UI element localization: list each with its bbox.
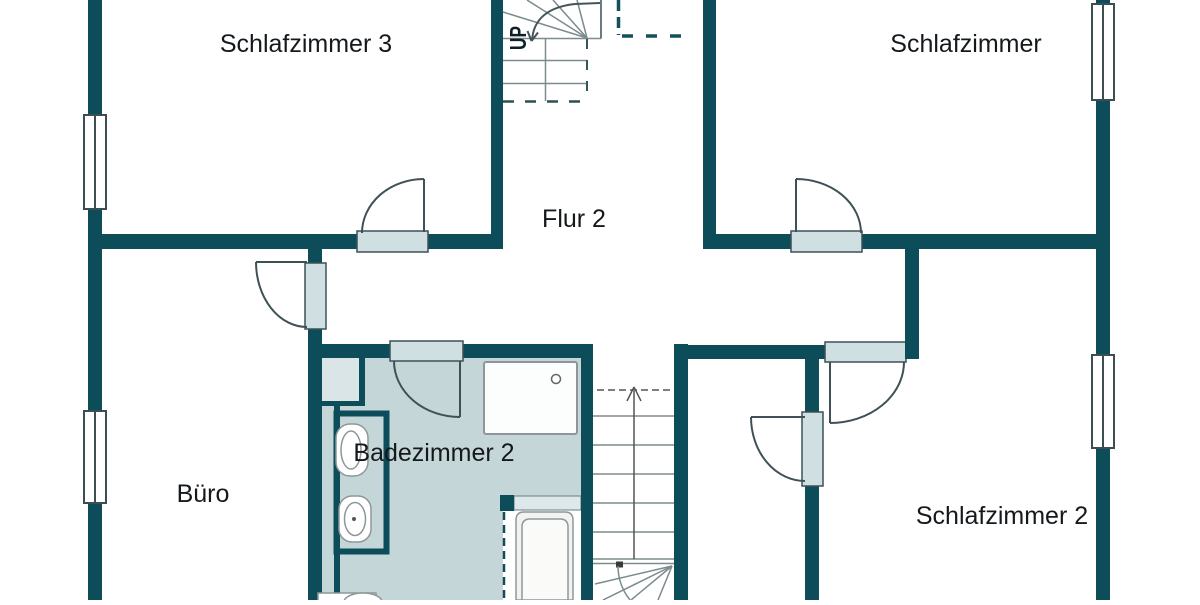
svg-text:Badezimmer 2: Badezimmer 2	[353, 439, 514, 467]
svg-text:Büro: Büro	[177, 480, 230, 508]
svg-text:Schlafzimmer: Schlafzimmer	[890, 30, 1041, 58]
svg-text:UP: UP	[505, 26, 531, 50]
svg-text:Flur 2: Flur 2	[542, 205, 606, 233]
svg-text:Schlafzimmer 3: Schlafzimmer 3	[220, 30, 392, 58]
svg-text:Schlafzimmer 2: Schlafzimmer 2	[916, 502, 1088, 530]
